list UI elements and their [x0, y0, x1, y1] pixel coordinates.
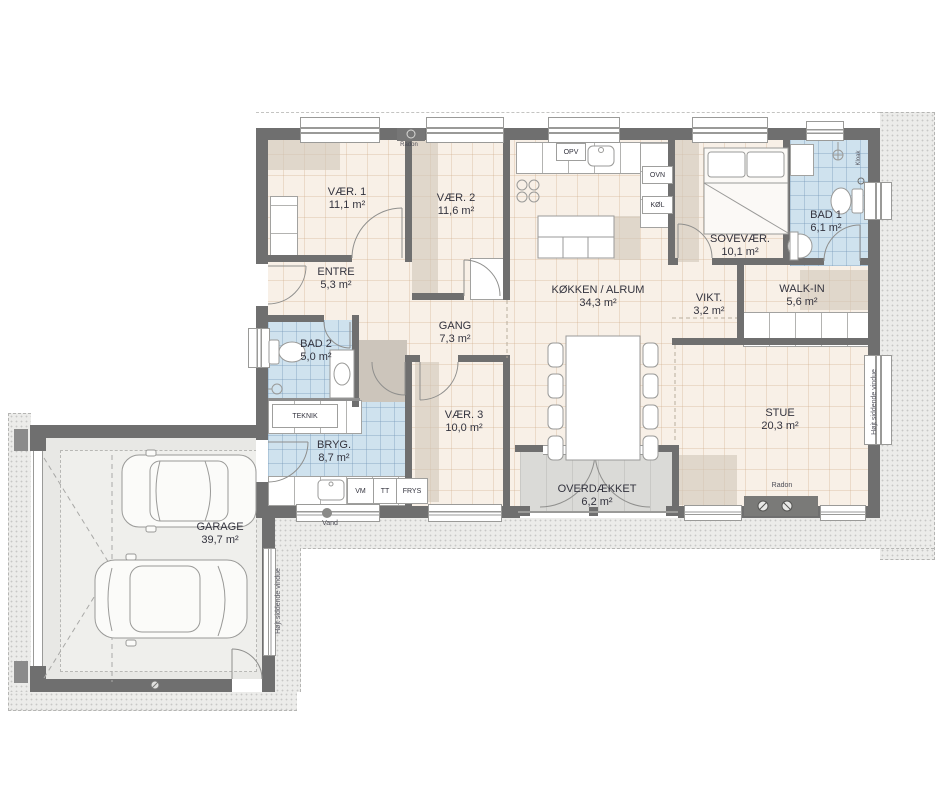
window [300, 117, 380, 143]
teknik-label: TEKNIK [272, 404, 338, 428]
dishwasher-label: OPV [556, 143, 586, 161]
wall-segment [268, 255, 352, 262]
door-opening [256, 264, 268, 306]
room-name: WALK-IN [779, 283, 824, 296]
room-name: VIKT. [693, 292, 724, 305]
wall-segment [648, 445, 678, 452]
room-label-vaer3: VÆR. 3 10,0 m² [445, 409, 484, 435]
room-label-gang: GANG 7,3 m² [439, 320, 471, 346]
radon-note-top: Radon [400, 142, 418, 148]
room-area: 5,0 m² [300, 351, 332, 364]
floor-plan: VÆR. 1 11,1 m² VÆR. 2 11,6 m² ENTRE 5,3 … [0, 0, 940, 788]
oven-label: OVN [642, 166, 673, 184]
high-window-note-garage: Højt siddende vindue [275, 541, 287, 661]
vaer2-cabinet [470, 258, 504, 300]
room-label-stue: STUE 20,3 m² [761, 407, 798, 433]
room-area: 20,3 m² [761, 420, 798, 433]
room-area: 34,3 m² [552, 297, 645, 310]
room-name: VÆR. 3 [445, 409, 484, 422]
room-area: 6,2 m² [558, 496, 637, 509]
room-area: 11,6 m² [437, 205, 476, 218]
room-name: SOVEVÆR. [710, 233, 770, 246]
window [428, 504, 502, 522]
wall-segment [783, 140, 790, 265]
wall-segment [352, 315, 359, 407]
wall-segment [672, 338, 868, 345]
vaer1-wardrobe-shade [268, 140, 340, 170]
eaves-garage-bottom [8, 692, 297, 711]
exterior-post [14, 429, 28, 451]
room-area: 6,1 m² [810, 222, 842, 235]
bad1-shelf [790, 144, 814, 176]
room-label-vaer2: VÆR. 2 11,6 m² [437, 192, 476, 218]
room-area: 8,7 m² [317, 452, 351, 465]
garage-door-post [30, 425, 46, 451]
window [684, 505, 742, 521]
room-area: 7,3 m² [439, 333, 471, 346]
wall-segment [737, 265, 744, 343]
window [692, 117, 768, 143]
room-name: STUE [761, 407, 798, 420]
room-area: 10,0 m² [445, 422, 484, 435]
room-label-walkin: WALK-IN 5,6 m² [779, 283, 824, 309]
room-area: 39,7 m² [196, 534, 243, 547]
wall-segment [672, 445, 679, 506]
teknik-partition [268, 398, 360, 401]
eaves-bottom [268, 518, 934, 549]
room-area: 5,6 m² [779, 296, 824, 309]
room-area: 5,3 m² [317, 279, 354, 292]
room-label-vaer1: VÆR. 1 11,1 m² [328, 186, 367, 212]
wall-segment [405, 355, 420, 362]
wall-segment [790, 258, 824, 265]
wall-segment [860, 258, 868, 265]
room-name: ENTRE [317, 266, 354, 279]
room-name: BRYG. [317, 439, 351, 452]
room-area: 11,1 m² [328, 199, 367, 212]
sovevaer-wardrobe-shade [675, 140, 699, 262]
radon-note-bottom: Radon [772, 482, 793, 489]
wall-segment [30, 425, 256, 438]
vand-note: Vand [322, 520, 338, 527]
garage-door [33, 451, 43, 666]
eaves-right [880, 112, 935, 560]
room-label-bad1: BAD 1 6,1 m² [810, 209, 842, 235]
room-name: GARAGE [196, 521, 243, 534]
wall-segment [503, 140, 510, 300]
room-label-entre: ENTRE 5,3 m² [317, 266, 354, 292]
room-name: BAD 2 [300, 338, 332, 351]
garage-parking-slab [60, 450, 257, 672]
room-name: GANG [439, 320, 471, 333]
wall-segment [515, 445, 543, 452]
radon-box-bottom [744, 496, 818, 516]
washer-label: VM [347, 478, 374, 504]
window [548, 117, 620, 143]
vaer1-wardrobe [270, 196, 298, 262]
vaer2-wardrobe-shade [412, 140, 438, 298]
wall-segment [268, 315, 324, 322]
wall-segment [412, 293, 464, 300]
wall-segment [405, 140, 412, 262]
room-label-overdaekket: OVERDÆKKET 6,2 m² [558, 483, 637, 509]
garage-door-post [30, 666, 46, 692]
kitchen-shade [614, 216, 640, 260]
room-label-vikt: VIKT. 3,2 m² [693, 292, 724, 318]
room-area: 10,1 m² [710, 246, 770, 259]
wall-segment [503, 355, 510, 506]
room-name: BAD 1 [810, 209, 842, 222]
terrace-edge [518, 511, 678, 513]
window [426, 117, 504, 143]
room-label-garage: GARAGE 39,7 m² [196, 521, 243, 547]
radon-box-top [397, 128, 425, 141]
door-opening [256, 440, 268, 482]
window [820, 505, 866, 521]
wall-segment [668, 258, 678, 265]
window [806, 121, 844, 141]
high-window-note-right: Højt siddende vindue [871, 342, 883, 462]
terrace-doors [543, 445, 648, 455]
fridge-label: KØL [642, 196, 673, 214]
room-name: VÆR. 1 [328, 186, 367, 199]
room-name: OVERDÆKKET [558, 483, 637, 496]
room-label-sovevaer: SOVEVÆR. 10,1 m² [710, 233, 770, 259]
exterior-post [14, 661, 28, 683]
freezer-label: FRYS [396, 478, 428, 504]
room-label-bad2: BAD 2 5,0 m² [300, 338, 332, 364]
shaft-shade [359, 340, 407, 402]
room-label-koekken: KØKKEN / ALRUM 34,3 m² [552, 284, 645, 310]
wall-segment [458, 355, 505, 362]
eaves-top-line [256, 112, 880, 113]
window [864, 182, 892, 220]
room-name: KØKKEN / ALRUM [552, 284, 645, 297]
kloak-note: Kloak [856, 138, 866, 178]
dryer-label: TT [373, 478, 397, 504]
window [248, 328, 270, 368]
stue-corner-shade [679, 455, 737, 505]
room-area: 3,2 m² [693, 305, 724, 318]
room-name: VÆR. 2 [437, 192, 476, 205]
wall-segment [30, 679, 232, 692]
room-label-bryg: BRYG. 8,7 m² [317, 439, 351, 465]
